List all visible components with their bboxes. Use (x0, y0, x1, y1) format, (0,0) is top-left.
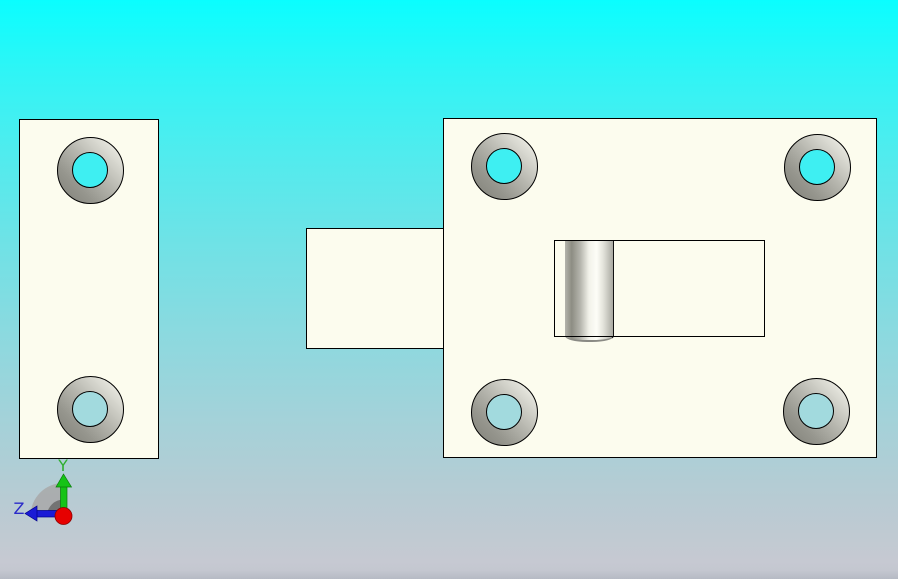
bolt-slot[interactable] (554, 240, 765, 337)
countersunk-hole[interactable] (783, 378, 850, 445)
rotation-fan-icon (31, 483, 64, 516)
countersunk-hole[interactable] (471, 133, 538, 200)
z-axis-label: Z (14, 499, 25, 518)
hole-bore (798, 393, 834, 429)
countersunk-hole[interactable] (784, 134, 851, 201)
strike-plate-part[interactable] (19, 119, 159, 459)
z-axis-arrow-icon (25, 506, 64, 521)
hole-bore (72, 391, 108, 427)
hole-bore (799, 149, 835, 185)
latch-body-part[interactable] (443, 118, 877, 458)
hole-bore (72, 152, 108, 188)
y-axis-arrow-icon (56, 474, 72, 516)
cad-viewport[interactable]: Y Z (0, 0, 898, 579)
countersunk-hole[interactable] (471, 379, 538, 446)
countersunk-hole[interactable] (57, 137, 124, 204)
origin-dot-icon (55, 508, 72, 525)
countersunk-hole[interactable] (57, 376, 124, 443)
rotation-fan-inner-icon (47, 500, 64, 517)
hole-bore (486, 394, 522, 430)
bolt-tongue[interactable] (306, 228, 444, 349)
hole-bore (486, 148, 522, 184)
